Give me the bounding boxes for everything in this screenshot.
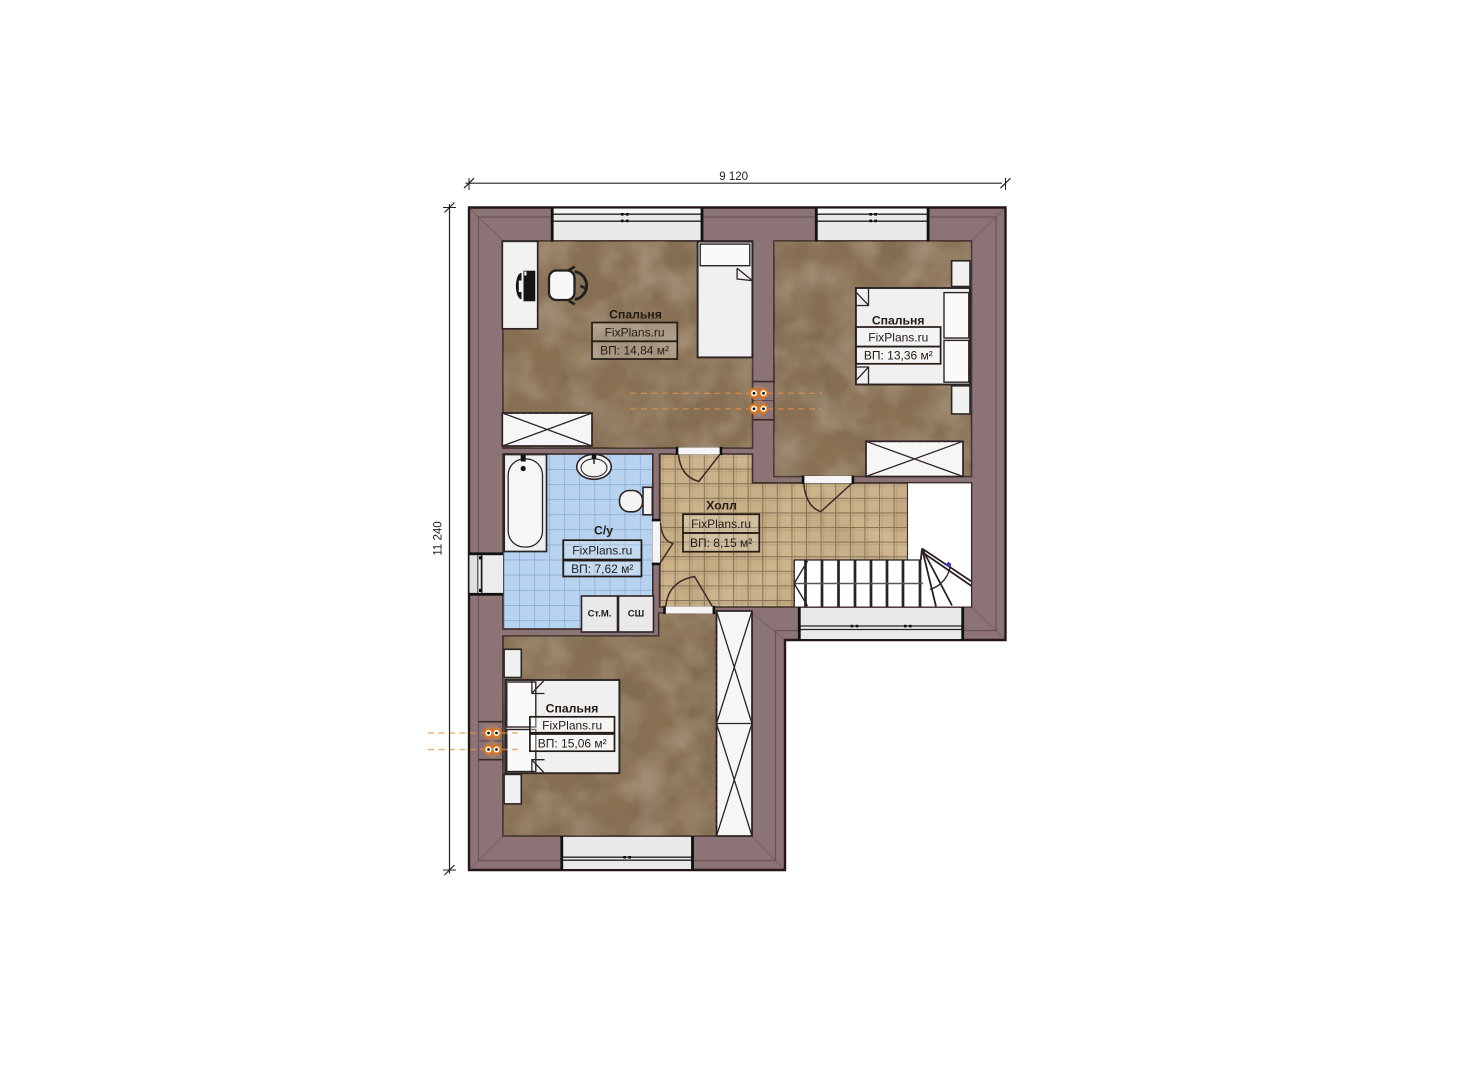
svg-text:СШ: СШ (628, 609, 644, 620)
svg-text:FixPlans.ru: FixPlans.ru (572, 543, 632, 557)
svg-text:11 240: 11 240 (433, 521, 445, 555)
svg-text:FixPlans.ru: FixPlans.ru (605, 325, 665, 339)
svg-text:ВП: 13,36 м²: ВП: 13,36 м² (864, 348, 933, 362)
svg-text:ВП: 15,06 м²: ВП: 15,06 м² (538, 736, 607, 750)
svg-text:Спальня: Спальня (872, 313, 925, 327)
svg-text:FixPlans.ru: FixPlans.ru (691, 517, 751, 531)
svg-text:ВП: 7,62 м²: ВП: 7,62 м² (571, 562, 633, 576)
svg-text:9 120: 9 120 (719, 171, 748, 183)
svg-text:Ст.М.: Ст.М. (588, 609, 612, 620)
svg-text:Спальня: Спальня (546, 701, 599, 715)
svg-text:FixPlans.ru: FixPlans.ru (868, 330, 928, 344)
svg-text:С/у: С/у (594, 524, 613, 538)
svg-text:Спальня: Спальня (609, 307, 662, 321)
svg-text:ВП: 14,84 м²: ВП: 14,84 м² (600, 343, 669, 357)
svg-text:ВП: 8,15 м²: ВП: 8,15 м² (690, 536, 752, 550)
svg-text:Холл: Холл (706, 499, 737, 513)
svg-text:FixPlans.ru: FixPlans.ru (542, 719, 602, 733)
